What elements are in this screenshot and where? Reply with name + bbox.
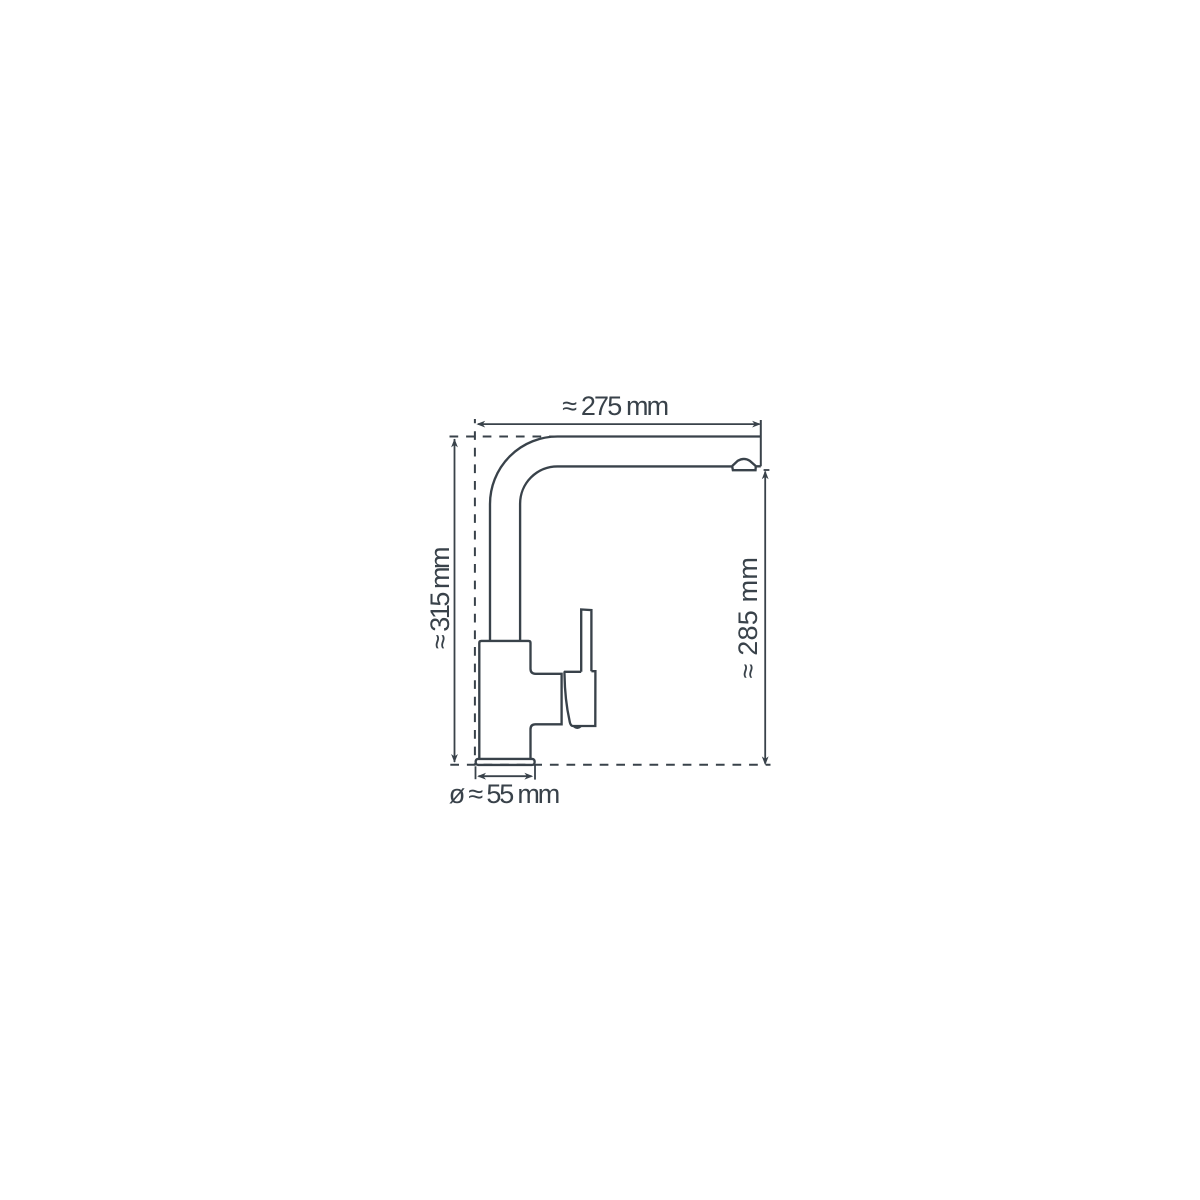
svg-text:≈ 315 mm: ≈ 315 mm bbox=[425, 547, 455, 650]
svg-text:ø ≈ 55 mm: ø ≈ 55 mm bbox=[449, 779, 560, 809]
svg-text:≈ 285 mm: ≈ 285 mm bbox=[733, 557, 763, 678]
svg-text:≈ 275 mm: ≈ 275 mm bbox=[562, 391, 669, 421]
